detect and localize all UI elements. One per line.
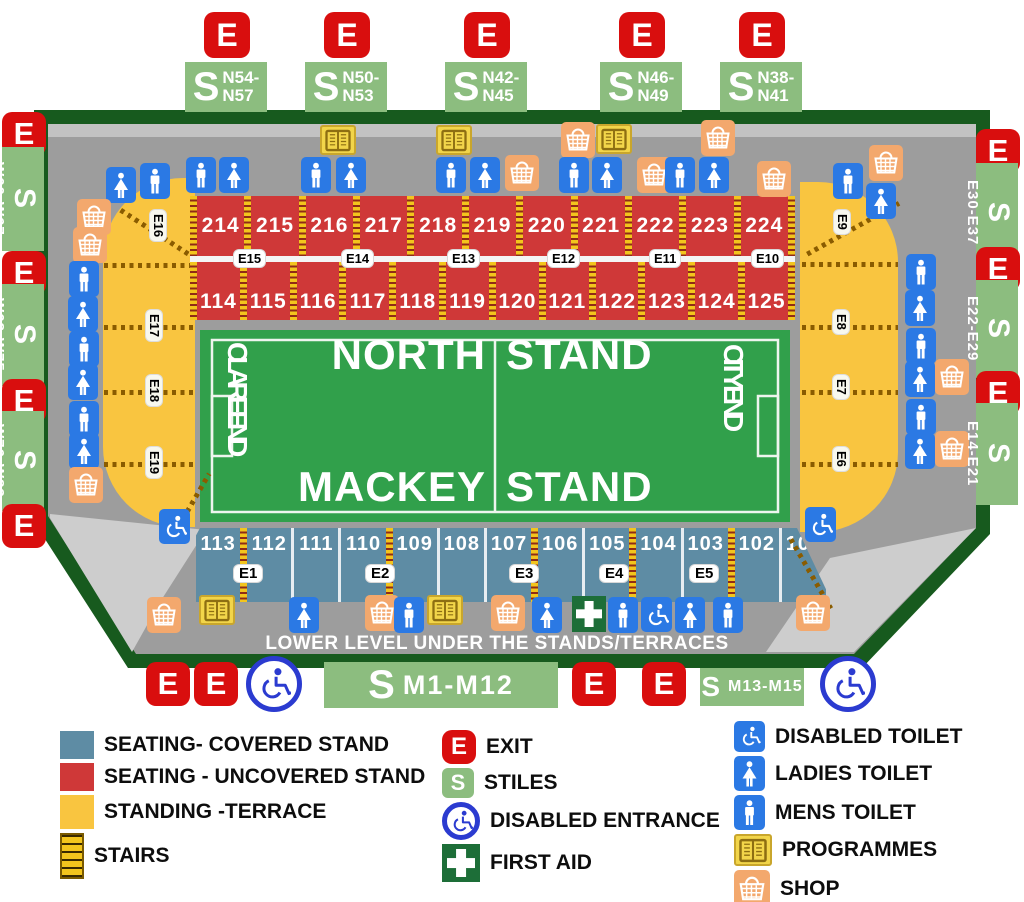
seating-section-uncovered: 216 — [306, 196, 353, 256]
exit-label: E6 — [833, 447, 849, 471]
exit-icon: E — [2, 504, 46, 548]
stiles-range-line: N38- — [757, 69, 794, 87]
stairs-divider — [244, 196, 251, 256]
ladies-toilet-icon — [336, 157, 366, 193]
legend-row: STANDING -TERRACE — [60, 795, 425, 829]
exit-label: E19 — [146, 447, 162, 478]
stiles-letter: S — [728, 69, 755, 105]
stiles-gate: SN38-N41 — [720, 62, 802, 112]
mens-toilet-icon — [186, 157, 216, 193]
stairs-divider — [462, 196, 469, 256]
stiles-letter: S — [453, 69, 480, 105]
programmes-icon — [436, 125, 472, 155]
programmes-icon — [320, 125, 356, 155]
seating-section-uncovered: 123 — [645, 262, 688, 320]
legend-label: DISABLED ENTRANCE — [490, 809, 720, 833]
stiles-range-line: N49 — [637, 87, 674, 105]
legend-label: PROGRAMMES — [782, 838, 937, 862]
legend-row: STAIRS — [60, 833, 425, 879]
legend-row: FIRST AID — [442, 844, 720, 882]
seating-section-covered: 104 — [636, 528, 680, 602]
pitch-label-mackey-stand: STAND — [506, 466, 653, 508]
seating-section-uncovered: 223 — [686, 196, 733, 256]
mens-toilet-icon — [734, 795, 765, 830]
stiles-gate: SM13-M15 — [700, 668, 804, 706]
legend-row: MENS TOILET — [734, 795, 962, 830]
stairs-divider — [299, 196, 306, 256]
pitch-label-north: NORTH — [330, 334, 486, 376]
exit-label: E10 — [752, 250, 783, 267]
legend-label: EXIT — [486, 735, 533, 759]
ladies-toilet-icon — [905, 290, 935, 326]
exit-label: E13 — [448, 250, 479, 267]
stiles-gate: SE22-E29 — [976, 280, 1018, 378]
disabled-toilet-icon — [641, 597, 672, 632]
stiles-letter: S — [7, 411, 41, 511]
seating-section-uncovered: 217 — [360, 196, 407, 256]
disabled-entrance-icon — [246, 656, 302, 712]
stiles-range: W60-W67 — [0, 147, 7, 251]
first-aid-icon — [572, 596, 606, 632]
seating-section-uncovered: 118 — [396, 262, 439, 320]
seating-section-covered: 108 — [440, 528, 484, 602]
ladies-toilet-icon — [219, 157, 249, 193]
stiles-gate: SM1-M12 — [324, 662, 558, 708]
pitch-label-clare-end: CLARE END — [222, 342, 252, 514]
legend-row: EEXIT — [442, 730, 720, 764]
stiles-range-line: N50- — [342, 69, 379, 87]
seating-section-uncovered: 218 — [414, 196, 461, 256]
exit-icon: E — [146, 662, 190, 706]
exit-label: E14 — [342, 250, 373, 267]
stairs-divider — [240, 262, 247, 320]
legend-label: DISABLED TOILET — [775, 725, 962, 749]
exit-label: E17 — [146, 310, 162, 341]
seating-section-uncovered: 122 — [596, 262, 639, 320]
shop-icon — [701, 120, 735, 156]
stairs-divider — [625, 196, 632, 256]
stairs-divider — [439, 262, 446, 320]
stairs-line — [802, 262, 898, 267]
stairs-divider — [688, 262, 695, 320]
legend-swatch — [60, 763, 94, 791]
legend-label: FIRST AID — [490, 851, 592, 875]
legend-facilities: DISABLED TOILETLADIES TOILETMENS TOILETP… — [734, 721, 962, 902]
seating-section-covered: 102 — [735, 528, 779, 602]
seating-section-uncovered: 121 — [546, 262, 589, 320]
stiles-letter: S — [701, 670, 720, 704]
seating-section-uncovered: 125 — [745, 262, 788, 320]
seating-section-uncovered: 119 — [446, 262, 489, 320]
legend-row: LADIES TOILET — [734, 756, 962, 791]
seating-section-uncovered: 114 — [197, 262, 240, 320]
mens-toilet-icon — [559, 157, 589, 193]
seating-section-uncovered: 214 — [197, 196, 244, 256]
mens-toilet-icon — [665, 157, 695, 193]
mens-toilet-icon — [713, 597, 743, 633]
mens-toilet-icon — [833, 163, 863, 199]
stiles-range: W76-W83 — [0, 411, 7, 511]
mens-toilet-icon — [436, 157, 466, 193]
exit-icon: E — [194, 662, 238, 706]
seating-section-uncovered: 224 — [741, 196, 788, 256]
programmes-icon — [734, 834, 772, 866]
stairs-divider — [738, 262, 745, 320]
stiles-range-line: N57 — [222, 87, 259, 105]
upper-tier-row: 214215216217218219220221222223224 — [190, 196, 795, 256]
exit-icon: E — [642, 662, 686, 706]
disabled-toilet-icon — [805, 507, 836, 542]
stairs-divider — [190, 262, 197, 320]
ladies-toilet-icon — [699, 157, 729, 193]
stiles-range: N46-N49 — [637, 69, 674, 106]
stairs-line — [802, 390, 898, 395]
seating-section-uncovered: 115 — [247, 262, 290, 320]
legend-row: DISABLED ENTRANCE — [442, 802, 720, 840]
stiles-range: N50-N53 — [342, 69, 379, 106]
disabled-entrance-icon — [820, 656, 876, 712]
stiles-range-line: N54- — [222, 69, 259, 87]
legend-label: SHOP — [780, 877, 840, 901]
stiles-gate: SN50-N53 — [305, 62, 387, 112]
mens-toilet-icon — [906, 254, 936, 290]
stiles-gate: SN54-N57 — [185, 62, 267, 112]
lower-tier-row: 114115116117118119120121122123124125 — [190, 262, 795, 320]
stairs-divider — [571, 196, 578, 256]
stairs-divider — [638, 262, 645, 320]
seating-section-uncovered: 116 — [297, 262, 340, 320]
stiles-letter: S — [193, 69, 220, 105]
mens-toilet-icon — [301, 157, 331, 193]
stairs-divider — [516, 196, 523, 256]
stairs-icon — [60, 833, 84, 879]
legend-areas: SEATING- COVERED STANDSEATING - UNCOVERE… — [60, 731, 425, 883]
stiles-letter: S — [981, 403, 1015, 505]
shop-icon — [491, 595, 525, 631]
exit-label: E16 — [150, 210, 166, 241]
exit-icon: E — [619, 12, 665, 58]
stiles-range-line: N41 — [757, 87, 794, 105]
exit-label: E9 — [834, 210, 850, 234]
stairs-divider — [190, 196, 197, 256]
exit-label: E11 — [650, 250, 680, 267]
mens-toilet-icon — [906, 328, 936, 364]
stairs-line — [802, 325, 898, 330]
seating-section-uncovered: 222 — [632, 196, 679, 256]
seating-section-covered: 113 — [196, 528, 240, 602]
mens-toilet-icon — [69, 401, 99, 437]
legend-row: SHOP — [734, 870, 962, 902]
stiles-letter: S — [7, 284, 41, 386]
legend-label: SEATING- COVERED STAND — [104, 733, 389, 757]
stairs-divider — [734, 196, 741, 256]
exit-label: E4 — [600, 565, 628, 582]
stairs-divider — [407, 196, 414, 256]
north-stand-sections: 214215216217218219220221222223224 E15E14… — [190, 196, 795, 320]
stiles-icon: S — [442, 768, 474, 798]
exit-label: E12 — [548, 250, 579, 267]
lower-level-note: LOWER LEVEL UNDER THE STANDS/TERRACES — [265, 633, 728, 655]
seating-section-uncovered: 220 — [523, 196, 570, 256]
stairs-line — [104, 263, 194, 268]
exit-label: E18 — [146, 375, 162, 406]
stairs-divider — [788, 196, 795, 256]
seating-section-covered: 109 — [393, 528, 437, 602]
exit-label: E2 — [366, 565, 394, 582]
shop-icon — [561, 122, 595, 158]
seating-section-uncovered: 221 — [578, 196, 625, 256]
stiles-range: E30-E37 — [964, 163, 981, 263]
stadium-seating-map: E17E18E19E16E8E7E6E9 2142152162172182192… — [0, 0, 1024, 902]
disabled-entrance-icon — [442, 802, 480, 840]
exit-icon: E — [572, 662, 616, 706]
programmes-icon — [596, 124, 632, 154]
shop-icon — [869, 145, 903, 181]
stiles-letter: S — [981, 280, 1015, 378]
stiles-gate: SN42-N45 — [445, 62, 527, 112]
shop-icon — [734, 870, 770, 902]
stiles-letter: S — [7, 147, 41, 251]
stiles-letter: S — [608, 69, 635, 105]
stiles-range-line: N45 — [482, 87, 519, 105]
stiles-letter: S — [313, 69, 340, 105]
stairs-divider — [389, 262, 396, 320]
ladies-toilet-icon — [734, 756, 765, 791]
programmes-icon — [427, 595, 463, 625]
stairs-divider — [353, 196, 360, 256]
stairs-divider — [539, 262, 546, 320]
stiles-range: W68-W75 — [0, 284, 7, 386]
legend-label: MENS TOILET — [775, 801, 916, 825]
concourse-top-band — [48, 124, 976, 137]
stiles-gate: SW68-W75 — [2, 284, 44, 386]
pitch-label-city-end: CITY END — [718, 344, 748, 516]
seating-section-uncovered: 117 — [346, 262, 389, 320]
mackey-stand-sections: 113112111110109108107106105104103102101 — [160, 528, 832, 602]
stiles-range: M13-M15 — [728, 678, 803, 696]
exit-label: E8 — [833, 310, 849, 334]
stiles-gate: SE14-E21 — [976, 403, 1018, 505]
exit-icon: E — [739, 12, 785, 58]
stairs-line — [802, 462, 898, 467]
stairs-divider — [290, 262, 297, 320]
exit-icon: E — [204, 12, 250, 58]
seating-section-uncovered: 120 — [496, 262, 539, 320]
ladies-toilet-icon — [866, 183, 896, 219]
stiles-gate: SW76-W83 — [2, 411, 44, 511]
legend-symbols: EEXITSSTILESDISABLED ENTRANCEFIRST AID — [442, 730, 720, 886]
ladies-toilet-icon — [675, 597, 705, 633]
stairs-divider — [788, 262, 795, 320]
stiles-letter: S — [368, 668, 395, 702]
exit-label: E3 — [510, 565, 538, 582]
legend-swatch — [60, 795, 94, 829]
legend-row: DISABLED TOILET — [734, 721, 962, 752]
first-aid-icon — [442, 844, 480, 882]
shop-icon — [796, 595, 830, 631]
exit-label: E15 — [234, 250, 265, 267]
stiles-range-line: N46- — [637, 69, 674, 87]
ladies-toilet-icon — [106, 167, 136, 203]
stiles-range: N42-N45 — [482, 69, 519, 106]
programmes-icon — [199, 595, 235, 625]
legend-row: SSTILES — [442, 768, 720, 798]
seating-section-covered: 106 — [538, 528, 582, 602]
ladies-toilet-icon — [532, 597, 562, 633]
mens-toilet-icon — [140, 163, 170, 199]
legend-label: STANDING -TERRACE — [104, 800, 326, 824]
upper-stand-walkway: E15E14E13E12E11E10 — [190, 256, 795, 262]
ladies-toilet-icon — [905, 433, 935, 469]
stiles-gate: SW60-W67 — [2, 147, 44, 251]
stiles-range-line: N53 — [342, 87, 379, 105]
pitch-label-north-stand: STAND — [506, 334, 653, 376]
legend-label: STILES — [484, 771, 558, 795]
ladies-toilet-icon — [68, 296, 98, 332]
seating-section-uncovered: 215 — [251, 196, 298, 256]
stiles-gate: SN46-N49 — [600, 62, 682, 112]
stairs-divider — [679, 196, 686, 256]
mens-toilet-icon — [69, 261, 99, 297]
stairs-divider — [589, 262, 596, 320]
stiles-range-line: N42- — [482, 69, 519, 87]
stiles-range: M1-M12 — [403, 670, 514, 701]
legend-row: SEATING - UNCOVERED STAND — [60, 763, 425, 791]
stairs-divider — [339, 262, 346, 320]
mens-toilet-icon — [69, 331, 99, 367]
stairs-divider — [489, 262, 496, 320]
ladies-toilet-icon — [905, 361, 935, 397]
exit-icon: E — [324, 12, 370, 58]
section-divider — [728, 528, 735, 602]
mens-toilet-icon — [906, 399, 936, 435]
terrace-east — [800, 182, 898, 532]
stiles-range: N38-N41 — [757, 69, 794, 106]
exit-label: E5 — [690, 565, 718, 582]
stiles-range: E22-E29 — [964, 280, 981, 378]
legend-row: PROGRAMMES — [734, 834, 962, 866]
exit-icon: E — [464, 12, 510, 58]
disabled-toilet-icon — [159, 509, 190, 544]
seating-section-uncovered: 124 — [695, 262, 738, 320]
shop-icon — [757, 161, 791, 197]
stiles-range: N54-N57 — [222, 69, 259, 106]
shop-icon — [147, 597, 181, 633]
legend-label: STAIRS — [94, 844, 169, 868]
exit-icon: E — [442, 730, 476, 764]
disabled-toilet-icon — [734, 721, 765, 752]
section-divider — [629, 528, 636, 602]
shop-icon — [69, 467, 103, 503]
legend-swatch — [60, 731, 94, 759]
mens-toilet-icon — [608, 597, 638, 633]
exit-label: E1 — [234, 565, 262, 582]
shop-icon — [505, 155, 539, 191]
legend-row: SEATING- COVERED STAND — [60, 731, 425, 759]
seating-section-covered: 111 — [294, 528, 338, 602]
shop-icon — [73, 227, 107, 263]
ladies-toilet-icon — [68, 364, 98, 400]
ladies-toilet-icon — [470, 157, 500, 193]
ladies-toilet-icon — [592, 157, 622, 193]
exit-label: E7 — [833, 375, 849, 399]
stiles-range: E14-E21 — [964, 403, 981, 505]
legend-label: SEATING - UNCOVERED STAND — [104, 765, 425, 789]
pitch-label-mackey: MACKEY — [290, 466, 486, 508]
legend-label: LADIES TOILET — [775, 762, 932, 786]
ladies-toilet-icon — [69, 433, 99, 469]
ladies-toilet-icon — [289, 597, 319, 633]
seating-section-uncovered: 219 — [469, 196, 516, 256]
mens-toilet-icon — [394, 597, 424, 633]
